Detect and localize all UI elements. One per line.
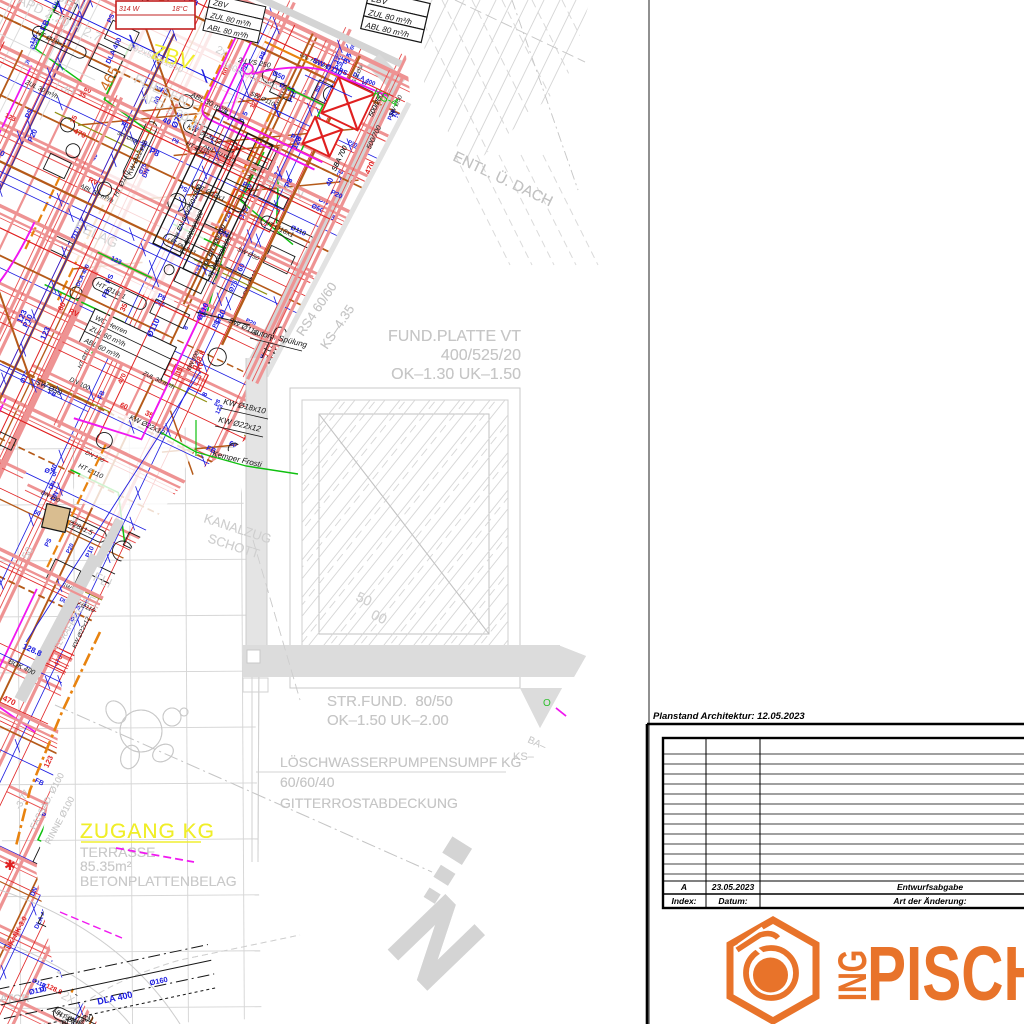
- svg-text:A: A: [680, 882, 687, 892]
- svg-text:23.05.2023: 23.05.2023: [711, 882, 755, 892]
- svg-text:Entwurfsabgabe: Entwurfsabgabe: [897, 882, 963, 892]
- svg-text:STR.FUND. 80/50: STR.FUND. 80/50: [327, 693, 453, 710]
- svg-text:PISCHUL: PISCHUL: [867, 931, 1024, 1017]
- svg-text:ATOR: ATOR: [0, 993, 30, 1005]
- svg-text:OK–1.30 UK–1.50: OK–1.30 UK–1.50: [391, 366, 521, 383]
- svg-text:Datum:: Datum:: [718, 896, 747, 906]
- svg-text:LÖSCHWASSERPUMPENSUMPF KG: LÖSCHWASSERPUMPENSUMPF KG: [280, 753, 521, 770]
- svg-text:60/60/40: 60/60/40: [280, 774, 335, 790]
- svg-text:FUND.PLATTE VT: FUND.PLATTE VT: [388, 328, 521, 345]
- svg-text:Index:: Index:: [671, 896, 696, 906]
- svg-text:18°C: 18°C: [172, 5, 189, 13]
- svg-text:314 W: 314 W: [119, 6, 141, 13]
- svg-text:✱: ✱: [4, 857, 16, 873]
- svg-text:Planstand Architektur: 12.05.2: Planstand Architektur: 12.05.2023: [653, 711, 805, 722]
- svg-text:400/525/20: 400/525/20: [441, 347, 521, 364]
- svg-text:Art der Änderung:: Art der Änderung:: [892, 896, 966, 906]
- svg-text:ZUGANG KG: ZUGANG KG: [80, 820, 215, 843]
- svg-text:BETONPLATTENBELAG: BETONPLATTENBELAG: [80, 873, 237, 889]
- svg-text:O: O: [543, 698, 551, 709]
- svg-text:85.35m²: 85.35m²: [80, 858, 132, 874]
- svg-text:GITTERROSTABDECKUNG: GITTERROSTABDECKUNG: [280, 795, 458, 811]
- svg-text:OK–1.50 UK–2.00: OK–1.50 UK–2.00: [327, 712, 449, 729]
